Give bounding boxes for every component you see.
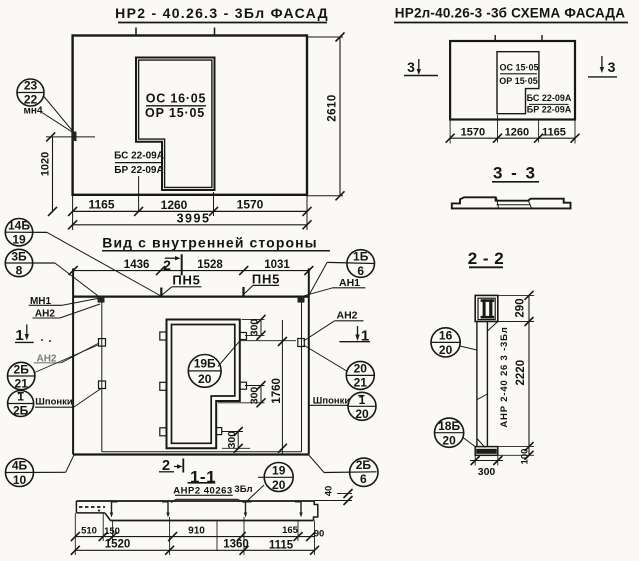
svg-text:НР2л-40.26-3 -3б СХЕМА ФАСАДА: НР2л-40.26-3 -3б СХЕМА ФАСАДА xyxy=(395,6,625,21)
svg-text:АН1: АН1 xyxy=(339,277,360,289)
svg-text:3Б: 3Б xyxy=(11,250,27,264)
svg-text:4Б: 4Б xyxy=(12,459,28,473)
svg-text:1260: 1260 xyxy=(505,127,529,139)
svg-text:21: 21 xyxy=(354,376,368,390)
svg-text:1260: 1260 xyxy=(161,198,188,212)
svg-text:ОР 15·05: ОР 15·05 xyxy=(499,76,538,86)
svg-text:1360: 1360 xyxy=(223,539,249,551)
svg-text:910: 910 xyxy=(188,526,205,537)
svg-text:23: 23 xyxy=(24,79,38,93)
svg-text:2Б: 2Б xyxy=(356,458,372,472)
svg-text:НР2 - 40.26.3 - 3Бл ФАСАД: НР2 - 40.26.3 - 3Бл ФАСАД xyxy=(115,5,329,21)
svg-text:2: 2 xyxy=(163,257,171,273)
svg-text:19: 19 xyxy=(272,463,286,477)
svg-text:мн4: мн4 xyxy=(24,106,43,117)
svg-text:АН2: АН2 xyxy=(336,310,357,322)
svg-text:1520: 1520 xyxy=(105,539,131,551)
svg-text:20: 20 xyxy=(442,433,456,447)
svg-text:2Б: 2Б xyxy=(14,363,30,377)
svg-text:510: 510 xyxy=(81,526,97,537)
svg-text:3: 3 xyxy=(407,59,415,75)
svg-text:300: 300 xyxy=(478,466,496,478)
svg-text:19: 19 xyxy=(12,233,26,247)
svg-text:1Б: 1Б xyxy=(353,250,369,264)
svg-text:АНР 2-40 26 3 -3Бл: АНР 2-40 26 3 -3Бл xyxy=(499,326,510,427)
svg-text:1031: 1031 xyxy=(264,259,290,271)
svg-text:20: 20 xyxy=(354,362,368,376)
svg-text:ОР 15·05: ОР 15·05 xyxy=(145,106,205,120)
svg-text:40: 40 xyxy=(324,486,335,497)
svg-text:300: 300 xyxy=(249,319,261,337)
svg-text:ОС 16·05: ОС 16·05 xyxy=(146,92,207,106)
svg-text:14Б: 14Б xyxy=(8,219,30,233)
svg-text:100: 100 xyxy=(520,449,531,465)
svg-text:150: 150 xyxy=(104,526,120,537)
svg-text:2220: 2220 xyxy=(515,360,527,386)
svg-text:90: 90 xyxy=(314,529,325,540)
svg-text:20: 20 xyxy=(439,343,453,357)
svg-text:10: 10 xyxy=(13,473,27,487)
svg-text:20: 20 xyxy=(272,478,286,492)
svg-text:6: 6 xyxy=(360,472,367,486)
svg-text:1020: 1020 xyxy=(40,152,52,176)
svg-text:165: 165 xyxy=(282,525,299,536)
svg-text:16: 16 xyxy=(439,329,453,343)
svg-text:БС 22-09А: БС 22-09А xyxy=(527,93,572,103)
svg-text:2 - 2: 2 - 2 xyxy=(468,249,505,268)
svg-text:22: 22 xyxy=(24,93,38,107)
svg-text:1: 1 xyxy=(15,327,23,344)
svg-text:3: 3 xyxy=(608,59,616,75)
svg-text:БР 22-09А: БР 22-09А xyxy=(527,105,572,115)
svg-text:1165: 1165 xyxy=(88,198,114,212)
svg-text:19Б: 19Б xyxy=(194,357,216,371)
svg-text:1528: 1528 xyxy=(197,259,223,271)
svg-text:1: 1 xyxy=(17,390,24,404)
svg-text:1570: 1570 xyxy=(461,127,485,139)
svg-text:21: 21 xyxy=(15,377,29,391)
svg-text:БР 22-09А: БР 22-09А xyxy=(114,165,163,176)
svg-text:300: 300 xyxy=(249,387,261,405)
svg-text:6: 6 xyxy=(357,264,364,278)
svg-text:1570: 1570 xyxy=(237,198,264,212)
svg-text:8: 8 xyxy=(16,264,23,278)
svg-text:3Бл: 3Бл xyxy=(234,484,252,495)
svg-text:ПН5: ПН5 xyxy=(172,273,200,288)
svg-text:1436: 1436 xyxy=(124,259,150,271)
svg-text:ОС 15·05: ОС 15·05 xyxy=(499,63,538,73)
svg-text:2610: 2610 xyxy=(327,94,339,122)
svg-text:18Б: 18Б xyxy=(438,419,460,433)
svg-text:1760: 1760 xyxy=(271,378,283,404)
svg-text:3 - 3: 3 - 3 xyxy=(493,164,537,183)
svg-text:20: 20 xyxy=(198,372,212,386)
svg-text:20: 20 xyxy=(355,407,369,421)
svg-text:300: 300 xyxy=(226,431,238,449)
svg-text:ПН5: ПН5 xyxy=(252,272,280,287)
svg-text:290: 290 xyxy=(515,298,527,317)
svg-text:БС 22-09А: БС 22-09А xyxy=(114,151,164,162)
svg-text:3995: 3995 xyxy=(177,212,211,226)
svg-text:1: 1 xyxy=(359,393,366,407)
svg-text:2Б: 2Б xyxy=(13,404,29,418)
svg-text:1115: 1115 xyxy=(269,540,294,552)
svg-text:1165: 1165 xyxy=(542,127,566,139)
svg-text:1-1: 1-1 xyxy=(190,468,216,487)
svg-text:Шпонки: Шпонки xyxy=(35,397,73,408)
svg-text:Вид с внутренней стороны: Вид с внутренней стороны xyxy=(102,235,318,251)
